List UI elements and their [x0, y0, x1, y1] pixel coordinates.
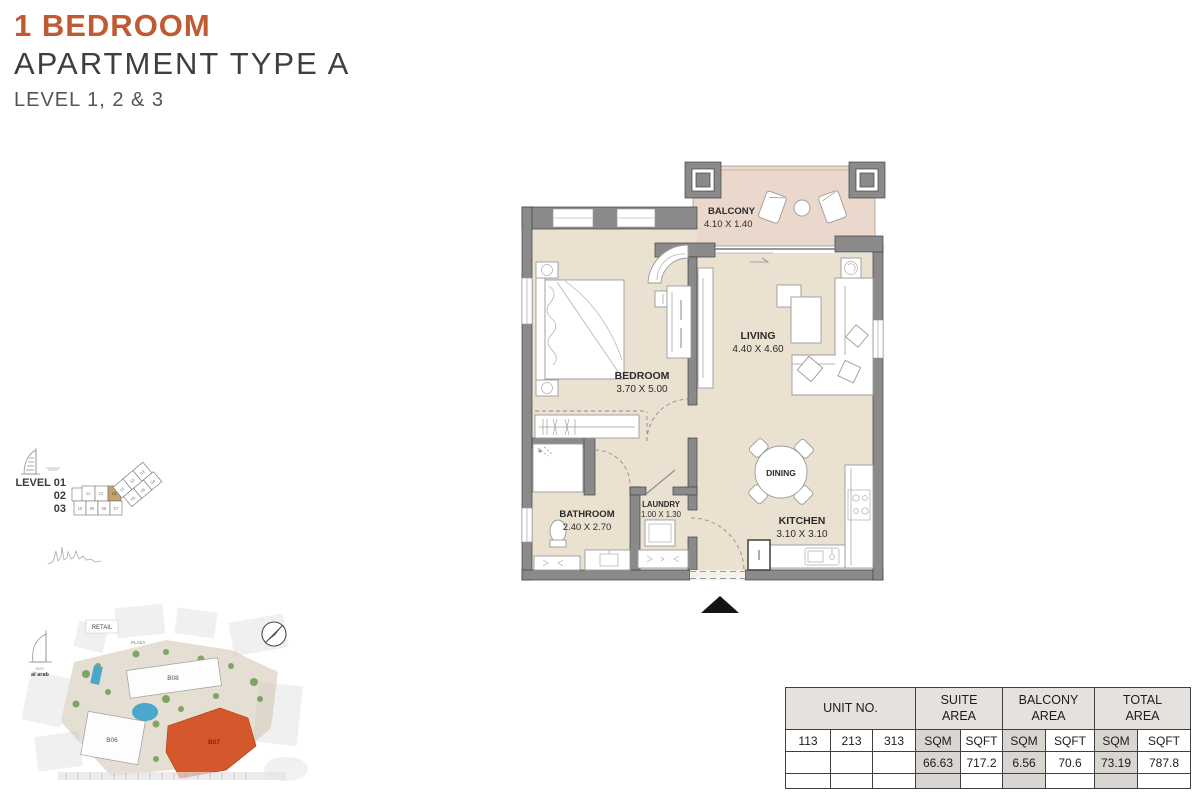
balcony-sqft-value: 70.6 [1046, 752, 1095, 774]
kitchen-label: KITCHEN [779, 515, 826, 527]
pool-main [132, 703, 158, 721]
entrance-marker [701, 596, 739, 613]
apartment-type-subtitle: APARTMENT TYPE A [14, 45, 350, 84]
balcony-pillar-right [849, 162, 885, 198]
total-sqft-label: SQFT [1138, 730, 1191, 752]
total-sqft-value: 787.8 [1138, 752, 1191, 774]
empty-cell [1095, 774, 1138, 789]
total-area-line1: TOTAL [1095, 693, 1190, 709]
suite-area-line2: AREA [916, 709, 1002, 725]
empty-cell [1003, 774, 1046, 789]
balcony-label: BALCONY [708, 206, 756, 217]
empty-cell [831, 774, 873, 789]
laundry-label: LAUNDRY [642, 500, 681, 509]
empty-cell [831, 752, 873, 774]
level-subtitle: LEVEL 1, 2 & 3 [14, 89, 350, 112]
unit-label: 10 [78, 506, 83, 511]
kitchen-dims: 3.10 X 3.10 [776, 529, 828, 540]
balcony-table [794, 200, 810, 216]
unit-113: 113 [786, 730, 831, 752]
site-map: B08 B06 B07 RETAIL PLAZA BURJ al arab [16, 604, 308, 796]
bathroom-dims: 2.40 X 2.70 [563, 522, 612, 533]
level-key-label-2: 02 [54, 490, 66, 502]
b08-label: B08 [167, 675, 179, 682]
total-area-header: TOTAL AREA [1095, 688, 1191, 730]
dresser [667, 286, 691, 358]
unit-label: 07 [114, 506, 119, 511]
basin-counter [585, 550, 630, 570]
suite-sqft-label: SQFT [961, 730, 1003, 752]
burj-label-2: al arab [31, 672, 49, 678]
suite-sqm-label: SQM [916, 730, 961, 752]
plaza-label: PLAZA [131, 640, 145, 645]
unit-313: 313 [873, 730, 916, 752]
total-sqm-value: 73.19 [1095, 752, 1138, 774]
b06-label: B06 [106, 737, 118, 744]
suite-sqm-value: 66.63 [916, 752, 961, 774]
empty-cell [1046, 774, 1095, 789]
level-key-label-1: LEVEL 01 [16, 477, 66, 489]
tv-unit [698, 268, 713, 388]
suite-sqft-value: 717.2 [961, 752, 1003, 774]
wardrobe [535, 415, 639, 438]
balcony-pillar-left [685, 162, 721, 198]
empty-cell [961, 774, 1003, 789]
ac-unit [841, 258, 861, 278]
empty-cell [873, 752, 916, 774]
unit-213: 213 [831, 730, 873, 752]
total-area-line2: AREA [1095, 709, 1190, 725]
balcony-area-line1: BALCONY [1003, 693, 1094, 709]
dining-label: DINING [766, 468, 796, 478]
balcony-dims: 4.10 X 1.40 [704, 219, 753, 230]
living-dims: 4.40 X 4.60 [732, 344, 784, 355]
bathroom-label: BATHROOM [559, 509, 614, 520]
empty-cell [786, 752, 831, 774]
balcony-area-header: BALCONY AREA [1003, 688, 1095, 730]
vanity [534, 556, 580, 570]
unit-label: 12 [99, 491, 104, 496]
page-title: 1 BEDROOM [14, 8, 350, 45]
level-key: LEVEL 01 02 03 [16, 446, 196, 578]
bed [536, 262, 624, 396]
compass-icon [262, 622, 286, 646]
retail-label: RETAIL [92, 625, 113, 631]
skyline-sketch [48, 547, 101, 564]
unit-label: 11 [86, 491, 91, 496]
brochure-page: 1 BEDROOM APARTMENT TYPE A LEVEL 1, 2 & … [0, 0, 1200, 800]
unit-label-highlight: 13 [112, 491, 117, 496]
level-key-label-3: 03 [54, 503, 66, 515]
balcony-sqm-label: SQM [1003, 730, 1046, 752]
level-key-plan: 11 12 13 10 09 08 07 01 02 03 06 05 04 [72, 461, 162, 515]
empty-cell [916, 774, 961, 789]
balcony-area-line2: AREA [1003, 709, 1094, 725]
suite-area-line1: SUITE [916, 693, 1002, 709]
building-b06: B06 [81, 711, 146, 764]
floor-plan: BALCONY 4.10 X 1.40 BEDROOM 3.70 X 5.00 … [505, 150, 900, 620]
laundry-dims: 1.00 X 1.30 [641, 510, 682, 519]
area-table: UNIT NO. SUITE AREA BALCONY AREA TOTAL A… [785, 687, 1191, 789]
b07-label: B07 [208, 739, 220, 746]
empty-cell [786, 774, 831, 789]
burj-label-1: BURJ [36, 667, 45, 671]
empty-cell [873, 774, 916, 789]
living-label: LIVING [740, 330, 775, 342]
title-block: 1 BEDROOM APARTMENT TYPE A LEVEL 1, 2 & … [14, 8, 350, 112]
bedroom-dims: 3.70 X 5.00 [616, 384, 668, 395]
road [58, 772, 286, 780]
suite-area-header: SUITE AREA [916, 688, 1003, 730]
unit-label: 09 [90, 506, 95, 511]
unit-no-header: UNIT NO. [786, 688, 916, 730]
unit-label: 08 [102, 506, 107, 511]
balcony-sqm-value: 6.56 [1003, 752, 1046, 774]
total-sqm-label: SQM [1095, 730, 1138, 752]
balcony-sqft-label: SQFT [1046, 730, 1095, 752]
empty-cell [1138, 774, 1191, 789]
bedroom-label: BEDROOM [615, 370, 670, 382]
burj-al-arab-icon [21, 448, 60, 474]
